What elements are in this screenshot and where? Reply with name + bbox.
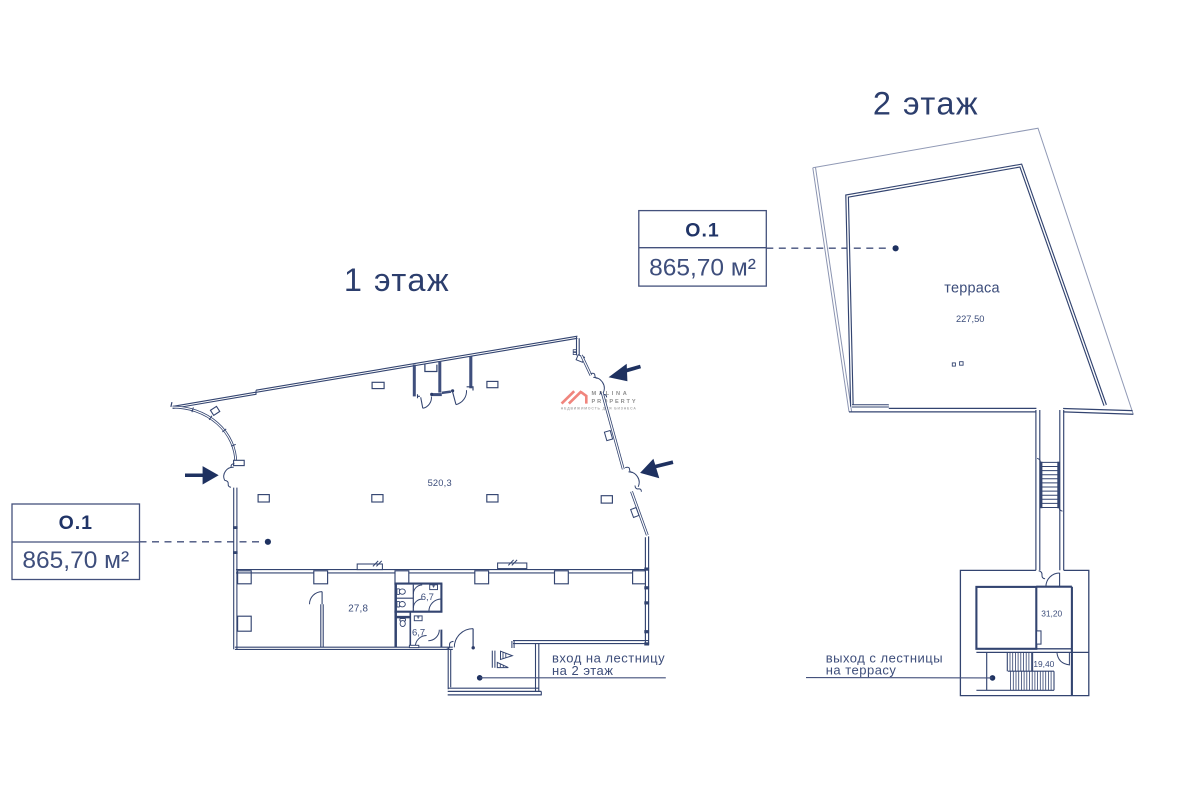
svg-text:2 этаж: 2 этаж	[873, 86, 979, 122]
svg-text:терраса: терраса	[944, 281, 1000, 297]
svg-text:О.1: О.1	[59, 512, 93, 534]
svg-text:31,20: 31,20	[1041, 608, 1062, 618]
svg-text:865,70 м²: 865,70 м²	[649, 255, 756, 282]
svg-text:6,7: 6,7	[412, 627, 425, 638]
svg-text:27,8: 27,8	[348, 603, 368, 614]
svg-text:6,7: 6,7	[421, 592, 434, 603]
svg-text:MALINA: MALINA	[592, 391, 630, 397]
svg-text:НЕДВИЖИМОСТЬ ДЛЯ БИЗНЕСА: НЕДВИЖИМОСТЬ ДЛЯ БИЗНЕСА	[561, 407, 637, 411]
svg-text:19,40: 19,40	[1033, 659, 1054, 669]
svg-text:520,3: 520,3	[428, 478, 452, 488]
svg-text:на террасу: на террасу	[826, 663, 897, 678]
svg-text:865,70 м²: 865,70 м²	[22, 547, 129, 574]
svg-text:1 этаж: 1 этаж	[344, 262, 450, 298]
svg-text:PROPERTY: PROPERTY	[592, 399, 638, 405]
svg-text:227,50: 227,50	[956, 314, 984, 324]
svg-text:на 2 этаж: на 2 этаж	[552, 663, 613, 678]
svg-text:О.1: О.1	[685, 220, 719, 242]
